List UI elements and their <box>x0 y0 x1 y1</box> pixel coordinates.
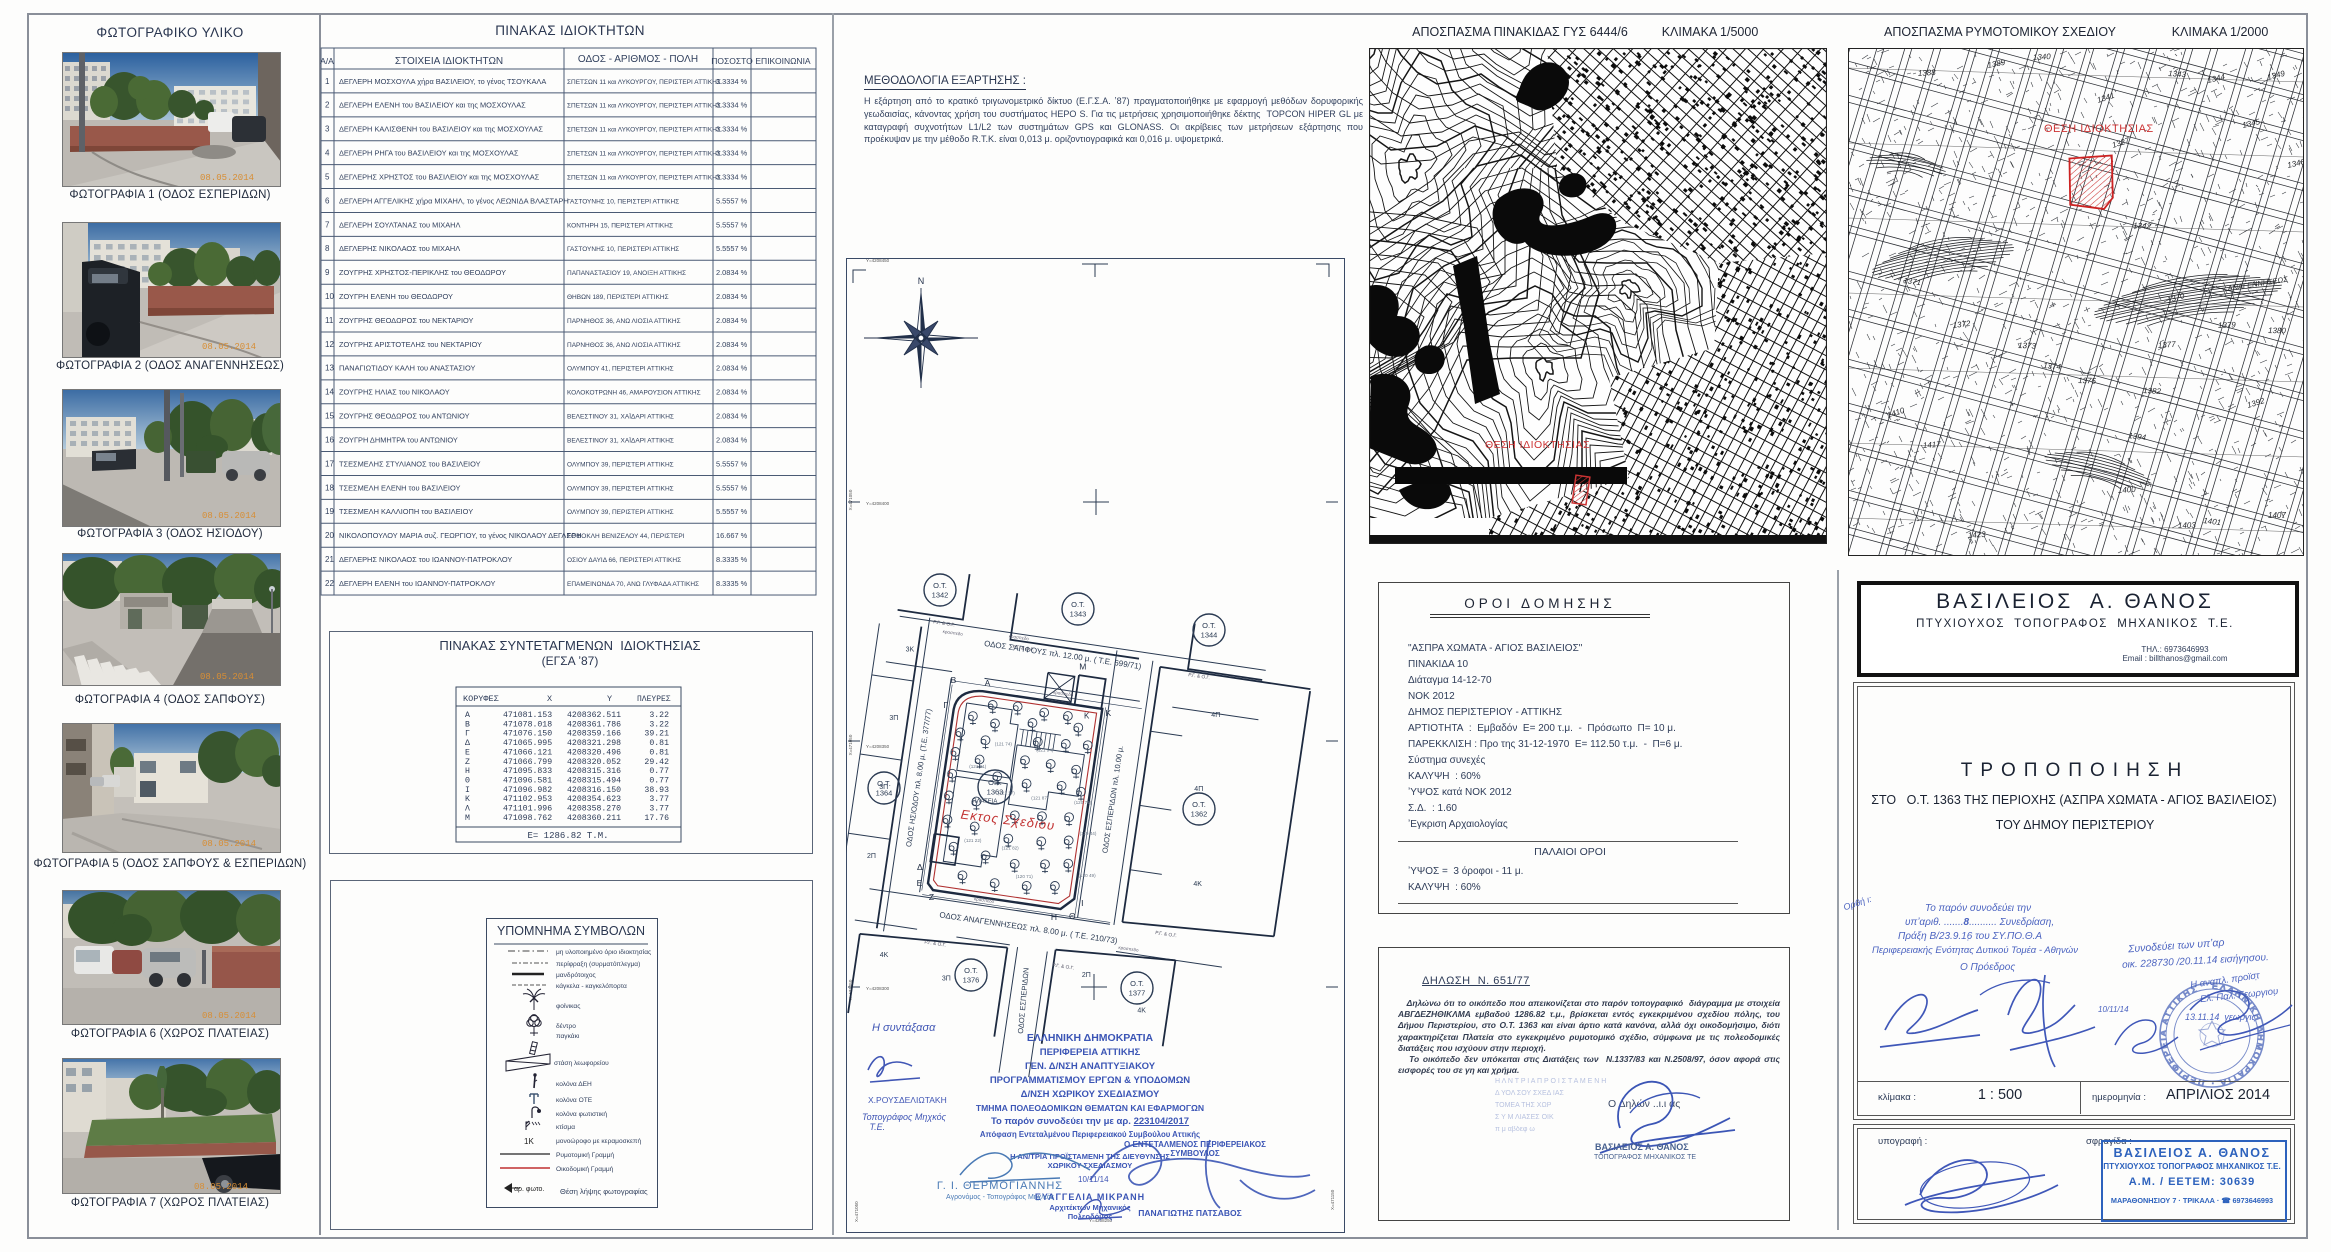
svg-text:K: K <box>1084 712 1090 721</box>
svg-text:ΠΟΣΟΣΤΟ: ΠΟΣΟΣΤΟ <box>711 56 753 66</box>
svg-text:2.0834 %: 2.0834 % <box>716 268 748 277</box>
svg-text:ΣΤΟΙΧΕΙΑ ΙΔΙΟΚΤΗΤΩΝ: ΣΤΟΙΧΕΙΑ ΙΔΙΟΚΤΗΤΩΝ <box>395 56 503 67</box>
svg-text:471066.799: 471066.799 <box>503 758 552 767</box>
svg-text:3.3334 %: 3.3334 % <box>716 101 748 110</box>
svg-text:471078.018: 471078.018 <box>503 720 552 729</box>
svg-text:Λ: Λ <box>465 805 470 814</box>
svg-text:Γ: Γ <box>465 730 470 739</box>
svg-text:ΔΕΓΛΕΡΗΣ ΝΙΚΟΛΑΟΣ του ΜΙΧΑΗΛ: ΔΕΓΛΕΡΗΣ ΝΙΚΟΛΑΟΣ του ΜΙΧΑΗΛ <box>339 244 460 253</box>
svg-text:4208358.270: 4208358.270 <box>567 805 621 814</box>
svg-text:13: 13 <box>325 364 334 373</box>
svg-text:ΔΕΓΛΕΡΗ ΕΛΕΝΗ του ΙΩΑΝΝΟΥ-ΠΑΤΡ: ΔΕΓΛΕΡΗ ΕΛΕΝΗ του ΙΩΑΝΝΟΥ-ΠΑΤΡΟΚΛΟΥ <box>339 579 496 588</box>
svg-text:1364: 1364 <box>876 789 893 798</box>
svg-text:Κ: Κ <box>465 795 470 804</box>
svg-text:κάγκελα - καγκελόπορτα: κάγκελα - καγκελόπορτα <box>556 982 627 990</box>
svg-text:08.05.2014: 08.05.2014 <box>202 839 256 849</box>
svg-text:4K: 4K <box>1137 1007 1146 1014</box>
svg-text:ΒΕΛΕΣΤΙΝΟΥ 31, ΧΑΪΔΑΡΙ ΑΤΤΙΚΗΣ: ΒΕΛΕΣΤΙΝΟΥ 31, ΧΑΪΔΑΡΙ ΑΤΤΙΚΗΣ <box>567 436 674 444</box>
svg-text:1376: 1376 <box>963 976 980 985</box>
svg-text:παγκάκι: παγκάκι <box>556 1032 580 1040</box>
svg-text:19: 19 <box>325 507 334 516</box>
svg-text:B: B <box>951 675 957 685</box>
svg-text:2.0834 %: 2.0834 % <box>716 435 748 444</box>
svg-text:Ο.Τ.: Ο.Τ. <box>964 966 978 975</box>
svg-text:Ο.Τ.: Ο.Τ. <box>1071 600 1085 609</box>
svg-text:8: 8 <box>325 244 330 253</box>
svg-text:3.3334 %: 3.3334 % <box>716 77 748 86</box>
svg-text:1343: 1343 <box>1070 610 1087 619</box>
svg-text:3Π: 3Π <box>889 715 898 722</box>
svg-text:10: 10 <box>325 292 334 301</box>
svg-text:4208320.496: 4208320.496 <box>567 748 621 757</box>
svg-text:Δ: Δ <box>917 862 923 872</box>
svg-text:ΣΠΕΤΣΩΝ 11 και ΛΥΚΟΥΡΓΟΥ, ΠΕΡΙ: ΣΠΕΤΣΩΝ 11 και ΛΥΚΟΥΡΓΟΥ, ΠΕΡΙΣΤΕΡΙ ΑΤΤΙ… <box>567 151 721 158</box>
svg-text:Εκτος Σχεδιου: Εκτος Σχεδιου <box>960 807 1056 833</box>
svg-text:ΣΠΕΤΣΩΝ 11 και ΛΥΚΟΥΡΓΟΥ, ΠΕΡΙ: ΣΠΕΤΣΩΝ 11 και ΛΥΚΟΥΡΓΟΥ, ΠΕΡΙΣΤΕΡΙ ΑΤΤΙ… <box>567 103 721 110</box>
svg-text:(119 44): (119 44) <box>1080 831 1097 836</box>
svg-text:ΠΑΡΝΗΘΟΣ 36, ΑΝΩ ΛΙΟΣΙΑ ΑΤΤΙΚΗ: ΠΑΡΝΗΘΟΣ 36, ΑΝΩ ΛΙΟΣΙΑ ΑΤΤΙΚΗΣ <box>567 318 681 325</box>
svg-text:471076.150: 471076.150 <box>503 730 552 739</box>
svg-text:1403: 1403 <box>2178 521 2197 530</box>
svg-text:Α: Α <box>465 711 470 720</box>
svg-text:ΔΕΓΛΕΡΗ ΜΟΣΧΟΥΛΑ χήρα ΒΑΣΙΛΕΙΟ: ΔΕΓΛΕΡΗ ΜΟΣΧΟΥΛΑ χήρα ΒΑΣΙΛΕΙΟΥ, το γένο… <box>339 77 546 86</box>
svg-text:ΚΟΡΥΦΕΣ: ΚΟΡΥΦΕΣ <box>463 694 499 704</box>
svg-text:4208315.494: 4208315.494 <box>567 776 621 785</box>
svg-text:ΣΟΦΟΚΛΗ ΒΕΝΙΖΕΛΟΥ 44, ΠΕΡΙΣΤΕΡ: ΣΟΦΟΚΛΗ ΒΕΝΙΖΕΛΟΥ 44, ΠΕΡΙΣΤΕΡΙ <box>567 533 685 540</box>
svg-text:2.0834 %: 2.0834 % <box>716 316 748 325</box>
svg-text:4Π: 4Π <box>1211 712 1220 719</box>
svg-text:κολόνα ΟΤΕ: κολόνα ΟΤΕ <box>556 1096 593 1104</box>
svg-text:ΠΑΠΑΝΑΣΤΑΣΙΟΥ 19, ΑΝΟΙΞΗ ΑΤΤΙΚ: ΠΑΠΑΝΑΣΤΑΣΙΟΥ 19, ΑΝΟΙΞΗ ΑΤΤΙΚΗΣ <box>567 270 686 277</box>
svg-text:ΖΟΥΓΡΗΣ ΗΛΙΑΣ του ΝΙΚΟΛΑΟΥ: ΖΟΥΓΡΗΣ ΗΛΙΑΣ του ΝΙΚΟΛΑΟΥ <box>339 388 450 397</box>
svg-text:ΤΣΕΣΜΕΛΗ ΚΑΛΛΙΟΠΗ του ΒΑΣΙΛΕΙΟ: ΤΣΕΣΜΕΛΗ ΚΑΛΛΙΟΠΗ του ΒΑΣΙΛΕΙΟΥ <box>339 507 473 516</box>
svg-text:5.5557 %: 5.5557 % <box>716 220 748 229</box>
svg-text:8.3335 %: 8.3335 % <box>716 555 748 564</box>
svg-text:12: 12 <box>325 340 334 349</box>
svg-text:1375: 1375 <box>2078 376 2097 386</box>
svg-text:μανδρότοιχος: μανδρότοιχος <box>556 971 596 979</box>
svg-text:4208361.786: 4208361.786 <box>567 720 621 729</box>
svg-text:3.22: 3.22 <box>649 720 669 729</box>
svg-text:2.0834 %: 2.0834 % <box>716 388 748 397</box>
svg-text:M: M <box>1079 662 1086 672</box>
svg-text:17: 17 <box>325 459 334 468</box>
svg-text:ΠΑΡΝΗΘΟΣ 36, ΑΝΩ ΛΙΟΣΙΑ ΑΤΤΙΚΗ: ΠΑΡΝΗΘΟΣ 36, ΑΝΩ ΛΙΟΣΙΑ ΑΤΤΙΚΗΣ <box>567 342 681 349</box>
svg-text:4208360.211: 4208360.211 <box>567 814 621 823</box>
svg-text:5: 5 <box>325 172 330 181</box>
svg-text:ΘΕΣΗ ΙΔΙΟΚΤΗΣΙΑΣ: ΘΕΣΗ ΙΔΙΟΚΤΗΣΙΑΣ <box>1485 439 1590 451</box>
svg-text:5.5557 %: 5.5557 % <box>716 196 748 205</box>
svg-text:Y=4208350: Y=4208350 <box>866 744 890 749</box>
svg-text:471101.996: 471101.996 <box>503 805 552 814</box>
svg-text:3K: 3K <box>906 647 915 654</box>
svg-text:Y=4208300: Y=4208300 <box>866 986 890 991</box>
svg-text:5.5557 %: 5.5557 % <box>716 507 748 516</box>
svg-text:Ι: Ι <box>465 786 470 795</box>
svg-text:(120 71): (120 71) <box>1016 874 1034 879</box>
svg-text:Y: Y <box>607 694 612 704</box>
svg-text:5.5557 %: 5.5557 % <box>716 459 748 468</box>
svg-text:Θέση λήψης φωτογραφίας: Θέση λήψης φωτογραφίας <box>560 1187 648 1196</box>
svg-text:1342: 1342 <box>2133 221 2152 231</box>
svg-text:Ρ.Γ. & Ο.Γ.: Ρ.Γ. & Ο.Γ. <box>1155 930 1177 939</box>
svg-text:1362: 1362 <box>1191 810 1208 819</box>
svg-text:κολόνα φωτιστική: κολόνα φωτιστική <box>556 1110 607 1118</box>
svg-text:2.0834 %: 2.0834 % <box>716 412 748 421</box>
svg-text:κρασπεδο: κρασπεδο <box>974 896 995 904</box>
svg-text:1377: 1377 <box>2158 340 2177 350</box>
svg-text:2Π: 2Π <box>1082 972 1091 979</box>
svg-text:11: 11 <box>325 316 334 325</box>
svg-text:29.42: 29.42 <box>644 758 669 767</box>
svg-text:ΟΔΟΣ ΕΣΠΕΡΙΔΩΝ: ΟΔΟΣ ΕΣΠΕΡΙΔΩΝ <box>1016 967 1031 1034</box>
svg-text:Οικοδομική Γραμμή: Οικοδομική Γραμμή <box>556 1166 614 1173</box>
svg-text:4208321.298: 4208321.298 <box>567 739 621 748</box>
svg-text:μονοώροφο με κεραμοσκεπή: μονοώροφο με κεραμοσκεπή <box>556 1137 641 1145</box>
svg-text:ΔΕΓΛΕΡΗΣ ΧΡΗΣΤΟΣ του ΒΑΣΙΛΕΙΟΥ: ΔΕΓΛΕΡΗΣ ΧΡΗΣΤΟΣ του ΒΑΣΙΛΕΙΟΥ και της Μ… <box>339 172 540 181</box>
svg-text:N: N <box>918 276 925 286</box>
svg-text:Ο.Τ.: Ο.Τ. <box>877 779 891 788</box>
svg-text:2.0834 %: 2.0834 % <box>716 340 748 349</box>
svg-text:ΤΣΕΣΜΕΛΗ ΕΛΕΝΗ του ΒΑΣΙΛΕΙΟΥ: ΤΣΕΣΜΕΛΗ ΕΛΕΝΗ του ΒΑΣΙΛΕΙΟΥ <box>339 483 460 492</box>
svg-text:1423: 1423 <box>1968 530 1987 540</box>
svg-text:1379: 1379 <box>2218 320 2237 330</box>
svg-text:471102.953: 471102.953 <box>503 795 552 804</box>
svg-text:ΣΠΕΤΣΩΝ 11 και ΛΥΚΟΥΡΓΟΥ, ΠΕΡΙ: ΣΠΕΤΣΩΝ 11 και ΛΥΚΟΥΡΓΟΥ, ΠΕΡΙΣΤΕΡΙ ΑΤΤΙ… <box>567 174 721 181</box>
svg-text:ΟΛΥΜΠΟΥ 39, ΠΕΡΙΣΤΕΡΙ ΑΤΤΙΚΗΣ: ΟΛΥΜΠΟΥ 39, ΠΕΡΙΣΤΕΡΙ ΑΤΤΙΚΗΣ <box>567 485 674 492</box>
svg-text:X=471050: X=471050 <box>854 1201 859 1222</box>
svg-text:Β: Β <box>465 720 470 729</box>
svg-text:I: I <box>1081 898 1083 908</box>
svg-text:2.0834 %: 2.0834 % <box>716 292 748 301</box>
svg-text:8.3335 %: 8.3335 % <box>716 579 748 588</box>
svg-text:ΣΠΕΤΣΩΝ 11 και ΛΥΚΟΥΡΓΟΥ, ΠΕΡΙ: ΣΠΕΤΣΩΝ 11 και ΛΥΚΟΥΡΓΟΥ, ΠΕΡΙΣΤΕΡΙ ΑΤΤΙ… <box>567 127 721 134</box>
svg-text:ΓΑΣΤΟΥΝΗΣ 10, ΠΕΡΙΣΤΕΡΙ ΑΤΤΙΚΗ: ΓΑΣΤΟΥΝΗΣ 10, ΠΕΡΙΣΤΕΡΙ ΑΤΤΙΚΗΣ <box>567 198 679 205</box>
svg-text:ΟΔΟΣ ΕΣΠΕΡΙΔΩΝ πλ. 10.00 μ.: ΟΔΟΣ ΕΣΠΕΡΙΔΩΝ πλ. 10.00 μ. <box>1100 745 1125 854</box>
svg-text:(121 94): (121 94) <box>1036 748 1054 753</box>
svg-text:4208320.052: 4208320.052 <box>567 758 621 767</box>
svg-text:471095.833: 471095.833 <box>503 767 552 776</box>
svg-text:ΝΙΚΟΛΟΠΟΥΛΟΥ ΜΑΡΙΑ συζ. ΓΕΩΡΓΙ: ΝΙΚΟΛΟΠΟΥΛΟΥ ΜΑΡΙΑ συζ. ΓΕΩΡΓΙΟΥ, το γέν… <box>339 531 582 540</box>
svg-text:3: 3 <box>325 125 330 134</box>
svg-text:1388: 1388 <box>1918 68 1937 78</box>
svg-text:471096.581: 471096.581 <box>503 776 552 785</box>
svg-text:ΟΣΙΟΥ ΔΑΥΙΔ 66, ΠΕΡΙΣΤΕΡΙ ΑΤΤΙ: ΟΣΙΟΥ ΔΑΥΙΔ 66, ΠΕΡΙΣΤΕΡΙ ΑΤΤΙΚΗΣ <box>567 557 681 564</box>
svg-text:2.0834 %: 2.0834 % <box>716 364 748 373</box>
svg-text:Μ: Μ <box>465 814 470 823</box>
svg-text:Δ: Δ <box>465 739 470 748</box>
svg-text:3.77: 3.77 <box>649 795 669 804</box>
svg-text:ΖΟΥΓΡΗ ΕΛΕΝΗ του ΘΕΟΔΩΡΟΥ: ΖΟΥΓΡΗ ΕΛΕΝΗ του ΘΕΟΔΩΡΟΥ <box>339 292 453 301</box>
svg-text:1400: 1400 <box>2118 485 2137 495</box>
svg-text:E: E <box>917 878 923 888</box>
svg-text:1343: 1343 <box>2168 69 2187 79</box>
svg-text:5.5557 %: 5.5557 % <box>716 244 748 253</box>
svg-text:ΚΟΛΟΚΟΤΡΩΝΗ 46, ΑΜΑΡΟΥΣΙΟΝ ΑΤΤ: ΚΟΛΟΚΟΤΡΩΝΗ 46, ΑΜΑΡΟΥΣΙΟΝ ΑΤΤΙΚΗΣ <box>567 390 701 397</box>
svg-text:(120 49): (120 49) <box>1079 873 1097 878</box>
svg-text:08.05.2014: 08.05.2014 <box>200 672 254 682</box>
svg-text:39.21: 39.21 <box>644 730 669 739</box>
svg-text:Ο.Τ.: Ο.Τ. <box>1130 979 1144 988</box>
svg-text:X=471150: X=471150 <box>1330 1189 1335 1210</box>
svg-text:4208315.316: 4208315.316 <box>567 767 621 776</box>
svg-text:περίφραξη (συρματόπλεγμα): περίφραξη (συρματόπλεγμα) <box>556 960 640 968</box>
svg-text:471066.121: 471066.121 <box>503 748 552 757</box>
svg-text:38.93: 38.93 <box>644 786 669 795</box>
svg-text:2Π: 2Π <box>867 853 876 860</box>
svg-text:(121 91): (121 91) <box>969 764 987 769</box>
svg-text:471098.762: 471098.762 <box>503 814 552 823</box>
svg-text:471065.995: 471065.995 <box>503 739 552 748</box>
svg-text:ΣΠΕΤΣΩΝ 11 και ΛΥΚΟΥΡΓΟΥ, ΠΕΡΙ: ΣΠΕΤΣΩΝ 11 και ΛΥΚΟΥΡΓΟΥ, ΠΕΡΙΣΤΕΡΙ ΑΤΤΙ… <box>567 79 721 86</box>
svg-text:1382: 1382 <box>2143 386 2162 396</box>
svg-text:ΠΑΝΑΓΙΩΤΙΔΟΥ ΚΑΛΗ του ΑΝΑΣΤΑΣΙ: ΠΑΝΑΓΙΩΤΙΔΟΥ ΚΑΛΗ του ΑΝΑΣΤΑΣΙΟΥ <box>339 364 475 373</box>
svg-text:Z: Z <box>929 892 934 902</box>
svg-text:Θ: Θ <box>465 776 470 785</box>
svg-text:E= 1286.82 T.M.: E= 1286.82 T.M. <box>527 831 608 841</box>
svg-text:4208316.150: 4208316.150 <box>567 786 621 795</box>
svg-text:X=471050: X=471050 <box>848 489 853 510</box>
svg-text:κτίσμα: κτίσμα <box>556 1123 575 1131</box>
svg-text:Α/Α: Α/Α <box>320 56 334 66</box>
svg-text:ΖΟΥΓΡΗΣ ΘΕΟΔΩΡΟΣ του ΝΕΚΤΑΡΙΟΥ: ΖΟΥΓΡΗΣ ΘΕΟΔΩΡΟΣ του ΝΕΚΤΑΡΙΟΥ <box>339 316 474 325</box>
svg-text:0.81: 0.81 <box>649 748 669 757</box>
svg-text:κολόνα ΔΕΗ: κολόνα ΔΕΗ <box>556 1080 592 1088</box>
svg-text:08.05.2014: 08.05.2014 <box>202 1011 256 1021</box>
svg-text:1377: 1377 <box>1129 989 1146 998</box>
svg-text:15: 15 <box>325 412 334 421</box>
svg-text:Ο.Τ.: Ο.Τ. <box>933 581 947 590</box>
svg-text:6: 6 <box>325 196 330 205</box>
svg-text:3.77: 3.77 <box>649 805 669 814</box>
svg-text:ΔΕΓΛΕΡΗΣ ΝΙΚΟΛΑΟΣ του ΙΩΑΝΝΟΥ-: ΔΕΓΛΕΡΗΣ ΝΙΚΟΛΑΟΣ του ΙΩΑΝΝΟΥ-ΠΑΤΡΟΚΛΟΥ <box>339 555 512 564</box>
svg-text:ΕΠΑΜΕΙΝΩΝΔΑ 70, ΑΝΩ ΓΛΥΦΑΔΑ ΑΤ: ΕΠΑΜΕΙΝΩΝΔΑ 70, ΑΝΩ ΓΛΥΦΑΔΑ ΑΤΤΙΚΗΣ <box>567 581 699 588</box>
svg-text:4K: 4K <box>880 952 889 959</box>
svg-text:(120 74): (120 74) <box>1074 800 1092 805</box>
svg-text:1342: 1342 <box>932 591 949 600</box>
svg-text:3.3334 %: 3.3334 % <box>716 172 748 181</box>
svg-text:ΟΛΥΜΠΟΥ 41, ΠΕΡΙΣΤΕΡΙ ΑΤΤΙΚΗΣ: ΟΛΥΜΠΟΥ 41, ΠΕΡΙΣΤΕΡΙ ΑΤΤΙΚΗΣ <box>567 366 674 373</box>
svg-text:μη υλοποιημένο όριο ιδιοκτησία: μη υλοποιημένο όριο ιδιοκτησίας <box>556 948 651 956</box>
svg-text:K: K <box>1105 708 1111 718</box>
svg-text:471096.982: 471096.982 <box>503 786 552 795</box>
svg-text:ΔΕΓΛΕΡΗ ΣΟΥΛΤΑΝΑΣ του ΜΙΧΑΗΛ: ΔΕΓΛΕΡΗ ΣΟΥΛΤΑΝΑΣ του ΜΙΧΑΗΛ <box>339 220 461 229</box>
svg-text:Ο.Τ.: Ο.Τ. <box>988 778 1002 787</box>
svg-text:X=471050: X=471050 <box>848 734 853 755</box>
svg-text:1K: 1K <box>524 1137 534 1146</box>
svg-text:3Π: 3Π <box>942 975 951 982</box>
svg-text:αρ. φωτο.: αρ. φωτο. <box>514 1186 544 1193</box>
svg-text:Ε: Ε <box>465 748 470 757</box>
svg-text:ΟΔΟΣ ΑΝΑΓΕΝΝΗΣΕΩΣ πλ. 8.00 μ.: ΟΔΟΣ ΑΝΑΓΕΝΝΗΣΕΩΣ πλ. 8.00 μ. ( Τ.Ε. 210… <box>939 910 1119 945</box>
svg-text:0.81: 0.81 <box>649 739 669 748</box>
svg-text:1363: 1363 <box>987 788 1004 797</box>
svg-text:21: 21 <box>325 555 334 564</box>
svg-text:7: 7 <box>325 220 330 229</box>
svg-text:ΟΛΥΜΠΟΥ 39, ΠΕΡΙΣΤΕΡΙ ΑΤΤΙΚΗΣ: ΟΛΥΜΠΟΥ 39, ΠΕΡΙΣΤΕΡΙ ΑΤΤΙΚΗΣ <box>567 509 674 516</box>
svg-text:16: 16 <box>325 435 334 444</box>
svg-text:Η: Η <box>465 767 470 776</box>
svg-text:ΤΣΕΣΜΕΛΗΣ ΣΤΥΛΙΑΝΟΣ του ΒΑΣΙΛΕ: ΤΣΕΣΜΕΛΗΣ ΣΤΥΛΙΑΝΟΣ του ΒΑΣΙΛΕΙΟΥ <box>339 459 481 468</box>
svg-text:κρασπεδο: κρασπεδο <box>942 629 963 637</box>
svg-text:1344: 1344 <box>1201 631 1218 640</box>
svg-text:1407: 1407 <box>2268 511 2286 520</box>
svg-text:4208359.166: 4208359.166 <box>567 730 621 739</box>
svg-text:5.5557 %: 5.5557 % <box>716 483 748 492</box>
svg-text:Θ: Θ <box>1069 911 1076 921</box>
svg-text:ΕΠΙΚΟΙΝΩΝΙΑ: ΕΠΙΚΟΙΝΩΝΙΑ <box>755 56 811 66</box>
svg-text:4Π: 4Π <box>1194 786 1203 793</box>
svg-text:(121 74): (121 74) <box>995 742 1013 747</box>
svg-text:(121 22): (121 22) <box>964 838 982 843</box>
svg-text:1417: 1417 <box>1923 440 1942 450</box>
svg-text:3.3334 %: 3.3334 % <box>716 125 748 134</box>
svg-text:4208354.623: 4208354.623 <box>567 795 621 804</box>
svg-text:3.22: 3.22 <box>649 711 669 720</box>
svg-text:20: 20 <box>325 531 334 540</box>
svg-text:4K: 4K <box>1193 881 1202 888</box>
svg-text:22: 22 <box>325 579 334 588</box>
svg-text:(121 82): (121 82) <box>1002 846 1020 851</box>
svg-text:Ζ: Ζ <box>465 758 470 767</box>
svg-text:ΓΑΣΤΟΥΝΗΣ 10, ΠΕΡΙΣΤΕΡΙ ΑΤΤΙΚΗ: ΓΑΣΤΟΥΝΗΣ 10, ΠΕΡΙΣΤΕΡΙ ΑΤΤΙΚΗΣ <box>567 246 679 253</box>
svg-text:0.77: 0.77 <box>649 767 669 776</box>
svg-text:Ρ.Γ. & Ο.Γ.: Ρ.Γ. & Ο.Γ. <box>1052 962 1074 971</box>
svg-text:16.667 %: 16.667 % <box>716 531 748 540</box>
svg-text:4208362.511: 4208362.511 <box>567 711 621 720</box>
svg-text:14: 14 <box>325 388 334 397</box>
svg-text:1: 1 <box>325 77 330 86</box>
svg-text:Ρ.Γ. & Ο.Γ.: Ρ.Γ. & Ο.Γ. <box>933 619 955 628</box>
svg-text:17.76: 17.76 <box>644 814 669 823</box>
svg-text:2: 2 <box>325 101 330 110</box>
svg-text:A: A <box>985 678 991 688</box>
svg-text:ΖΟΥΓΡΗΣ ΧΡΗΣΤΟΣ-ΠΕΡΙΚΛΗΣ του Θ: ΖΟΥΓΡΗΣ ΧΡΗΣΤΟΣ-ΠΕΡΙΚΛΗΣ του ΘΕΟΔΩΡΟΥ <box>339 268 506 277</box>
svg-text:στάση λεωφορείου: στάση λεωφορείου <box>554 1059 609 1067</box>
svg-text:ΟΔΟΣ - ΑΡΙΘΜΟΣ - ΠΟΛΗ: ΟΔΟΣ - ΑΡΙΘΜΟΣ - ΠΟΛΗ <box>578 54 698 65</box>
svg-text:Ρυμοτομική Γραμμή: Ρυμοτομική Γραμμή <box>556 1152 614 1159</box>
svg-text:1374: 1374 <box>2043 361 2062 372</box>
svg-text:ΚΟΝΤΗΡΗ 15, ΠΕΡΙΣΤΕΡΙ ΑΤΤΙΚΗΣ: ΚΟΝΤΗΡΗ 15, ΠΕΡΙΣΤΕΡΙ ΑΤΤΙΚΗΣ <box>567 222 673 229</box>
svg-text:ΔΕΓΛΕΡΗ ΚΑΛΙΣΘΕΝΗ του ΒΑΣΙΛΕΙΟ: ΔΕΓΛΕΡΗ ΚΑΛΙΣΘΕΝΗ του ΒΑΣΙΛΕΙΟΥ και της … <box>339 125 543 134</box>
svg-text:471081.153: 471081.153 <box>503 711 552 720</box>
svg-text:3.3334 %: 3.3334 % <box>716 149 748 158</box>
svg-text:ΟΛΥΜΠΟΥ 39, ΠΕΡΙΣΤΕΡΙ ΑΤΤΙΚΗΣ: ΟΛΥΜΠΟΥ 39, ΠΕΡΙΣΤΕΡΙ ΑΤΤΙΚΗΣ <box>567 461 674 468</box>
svg-text:9: 9 <box>325 268 330 277</box>
svg-text:ΖΟΥΓΡΗΣ ΑΡΙΣΤΟΤΕΛΗΣ του ΝΕΚΤΑΡ: ΖΟΥΓΡΗΣ ΑΡΙΣΤΟΤΕΛΗΣ του ΝΕΚΤΑΡΙΟΥ <box>339 340 482 349</box>
svg-text:X: X <box>547 694 552 704</box>
svg-text:Ο.Τ.: Ο.Τ. <box>1192 800 1206 809</box>
svg-text:Γ: Γ <box>943 700 948 710</box>
svg-text:ΘΗΒΩΝ 189, ΠΕΡΙΣΤΕΡΙ ΑΤΤΙΚΗΣ: ΘΗΒΩΝ 189, ΠΕΡΙΣΤΕΡΙ ΑΤΤΙΚΗΣ <box>567 294 669 301</box>
svg-text:δέντρο: δέντρο <box>556 1022 576 1030</box>
svg-text:1373: 1373 <box>2018 341 2037 351</box>
svg-text:Ο.Τ.: Ο.Τ. <box>1202 621 1216 630</box>
svg-text:0.77: 0.77 <box>649 776 669 785</box>
svg-text:κρασπεδο: κρασπεδο <box>1118 945 1139 953</box>
svg-text:φοίνικας: φοίνικας <box>556 1002 580 1010</box>
svg-text:ΠΛΕΥΡΕΣ: ΠΛΕΥΡΕΣ <box>637 695 671 704</box>
svg-text:ΖΟΥΓΡΗ ΔΗΜΗΤΡΑ του ΑΝΤΩΝΙΟΥ: ΖΟΥΓΡΗ ΔΗΜΗΤΡΑ του ΑΝΤΩΝΙΟΥ <box>339 435 458 444</box>
svg-text:ΘΕΣΗ ΙΔΙΟΚΤΗΣΙΑΣ: ΘΕΣΗ ΙΔΙΟΚΤΗΣΙΑΣ <box>2044 123 2154 135</box>
svg-text:ΔΕΓΛΕΡΗ ΕΛΕΝΗ του ΒΑΣΙΛΕΙΟΥ κα: ΔΕΓΛΕΡΗ ΕΛΕΝΗ του ΒΑΣΙΛΕΙΟΥ και της ΜΟΣΧ… <box>339 101 526 110</box>
svg-text:1380: 1380 <box>2268 326 2287 335</box>
svg-text:18: 18 <box>325 483 334 492</box>
svg-text:ΒΕΛΕΣΤΙΝΟΥ 31, ΧΑΪΔΑΡΙ ΑΤΤΙΚΗΣ: ΒΕΛΕΣΤΙΝΟΥ 31, ΧΑΪΔΑΡΙ ΑΤΤΙΚΗΣ <box>567 413 674 421</box>
svg-text:Y=4208450: Y=4208450 <box>866 258 890 263</box>
svg-text:ΔΕΓΛΕΡΗ ΡΗΓΑ του ΒΑΣΙΛΕΙΟΥ και: ΔΕΓΛΕΡΗ ΡΗΓΑ του ΒΑΣΙΛΕΙΟΥ και της ΜΟΣΧΟ… <box>339 149 519 158</box>
svg-text:1340: 1340 <box>2033 52 2052 62</box>
svg-text:Y=4208400: Y=4208400 <box>866 501 890 506</box>
svg-text:4: 4 <box>325 149 330 158</box>
svg-text:ΖΟΥΓΡΗΣ ΘΕΟΔΩΡΟΣ του ΑΝΤΩΝΙΟΥ: ΖΟΥΓΡΗΣ ΘΕΟΔΩΡΟΣ του ΑΝΤΩΝΙΟΥ <box>339 412 470 421</box>
svg-text:H: H <box>1051 912 1057 922</box>
svg-text:(121 87): (121 87) <box>1031 796 1049 801</box>
svg-text:ΔΕΓΛΕΡΗ ΑΓΓΕΛΙΚΗΣ χήρα ΜΙΧΑΗΛ,: ΔΕΓΛΕΡΗ ΑΓΓΕΛΙΚΗΣ χήρα ΜΙΧΑΗΛ, το γένος … <box>339 196 569 205</box>
svg-text:08.05.2014: 08.05.2014 <box>194 1182 248 1192</box>
